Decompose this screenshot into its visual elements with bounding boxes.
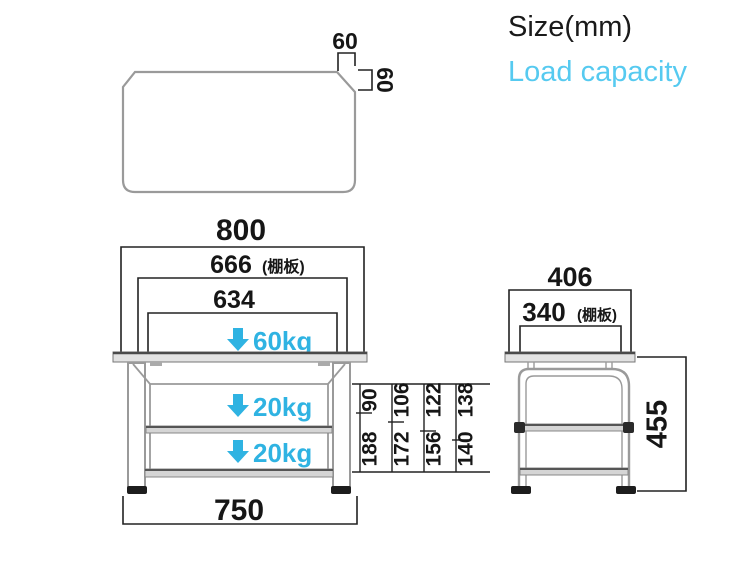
- front-view: 800 666 (棚板) 634 60kg 20kg: [113, 214, 367, 527]
- corner-width-bracket: [338, 53, 355, 71]
- top-view: 60 60: [123, 28, 398, 192]
- top-view-outline: [123, 72, 355, 192]
- front-leg-right: [333, 363, 350, 487]
- leg-span-value: 750: [214, 494, 264, 527]
- down-arrow-icon: [227, 440, 249, 463]
- foot-back: [616, 486, 636, 494]
- down-arrow-icon: [227, 328, 249, 351]
- corner-width-value: 60: [332, 28, 358, 54]
- lower-gap-value: 172: [391, 431, 414, 466]
- upper-gap-value: 106: [391, 382, 414, 417]
- foot-front: [511, 486, 531, 494]
- upper-gap-value: 138: [455, 382, 478, 417]
- foot-right: [331, 486, 351, 494]
- position-column-2: 106 172: [388, 382, 414, 472]
- position-column-4: 138 140: [452, 382, 478, 472]
- position-column-1: 90 188: [356, 384, 382, 472]
- overall-depth-value: 406: [547, 262, 592, 292]
- top-clamp-left: [150, 362, 162, 366]
- position-column-3: 122 156: [420, 382, 446, 472]
- bottom-load-value: 20kg: [253, 438, 312, 468]
- top-clamp-right: [318, 362, 330, 366]
- diagram-canvas: Size(mm) Load capacity 60 60 800 666 (棚板…: [0, 0, 750, 562]
- bottom-load: 20kg: [227, 438, 312, 468]
- shelf-depth-bracket: [520, 326, 621, 352]
- load-capacity-label: Load capacity: [508, 56, 687, 88]
- middle-load: 20kg: [227, 392, 312, 422]
- corner-depth-value: 60: [372, 67, 398, 93]
- size-unit-label: Size(mm): [508, 11, 632, 43]
- corner-depth-bracket: [358, 70, 372, 90]
- overall-width-value: 800: [216, 214, 266, 247]
- shelf-width-value: 666: [210, 251, 252, 279]
- shelf-clamp-back: [623, 422, 634, 433]
- shelf-clamp-front: [514, 422, 525, 433]
- front-leg-left: [128, 363, 145, 487]
- shelf-position-dimensions: 90 188 106 172 122 156 138 140: [352, 382, 490, 472]
- dimension-diagram: Size(mm) Load capacity 60 60 800 666 (棚板…: [0, 0, 750, 562]
- down-arrow-icon: [227, 394, 249, 417]
- shelf-depth-value: 340: [522, 297, 565, 327]
- shelf-width-note: (棚板): [262, 257, 305, 276]
- inner-width-value: 634: [213, 286, 255, 314]
- lower-gap-value: 140: [455, 431, 478, 466]
- height-value: 455: [642, 400, 674, 448]
- upper-gap-value: 122: [423, 382, 446, 417]
- foot-left: [127, 486, 147, 494]
- side-view: 406 340 (棚板) 455: [505, 262, 686, 494]
- shelf-depth-note: (棚板): [577, 306, 617, 324]
- legend: Size(mm) Load capacity: [508, 11, 687, 88]
- lower-gap-value: 188: [359, 431, 382, 466]
- lower-gap-value: 156: [423, 431, 446, 466]
- upper-gap-value: 90: [359, 388, 382, 411]
- middle-load-value: 20kg: [253, 392, 312, 422]
